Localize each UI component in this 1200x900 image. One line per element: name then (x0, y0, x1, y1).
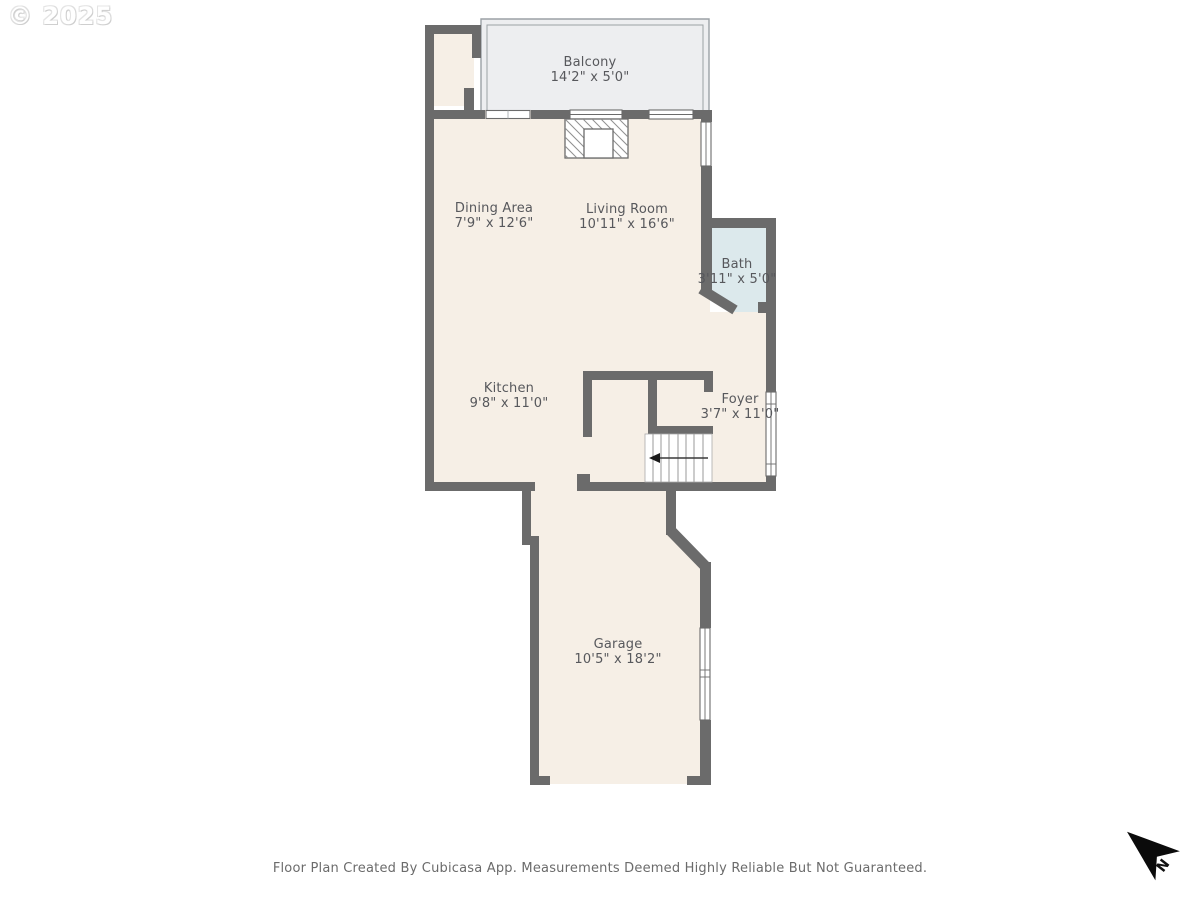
room-name: Living Room (579, 202, 675, 217)
room-name: Kitchen (470, 381, 549, 396)
room-dimensions: 3'7" x 11'0" (701, 407, 780, 422)
room-name: Balcony (551, 55, 630, 70)
room-dimensions: 3'11" x 5'0" (698, 272, 777, 287)
floor-plan-drawing: N (0, 0, 1200, 900)
room-dimensions: 10'11" x 16'6" (579, 217, 675, 232)
room-dimensions: 7'9" x 12'6" (455, 216, 534, 231)
room-label-living-room: Living Room 10'11" x 16'6" (579, 202, 675, 232)
room-label-garage: Garage 10'5" x 18'2" (574, 637, 661, 667)
room-name: Dining Area (455, 201, 534, 216)
room-dimensions: 14'2" x 5'0" (551, 70, 630, 85)
room-label-bath: Bath 3'11" x 5'0" (698, 257, 777, 287)
room-dimensions: 10'5" x 18'2" (574, 652, 661, 667)
disclaimer-text: Floor Plan Created By Cubicasa App. Meas… (0, 861, 1200, 876)
room-label-balcony: Balcony 14'2" x 5'0" (551, 55, 630, 85)
garage-floor (531, 480, 708, 784)
room-label-kitchen: Kitchen 9'8" x 11'0" (470, 381, 549, 411)
floor-plan-page: © 2025 (0, 0, 1200, 900)
room-dimensions: 9'8" x 11'0" (470, 396, 549, 411)
room-name: Garage (574, 637, 661, 652)
room-name: Bath (698, 257, 777, 272)
room-label-dining-area: Dining Area 7'9" x 12'6" (455, 201, 534, 231)
room-name: Foyer (701, 392, 780, 407)
room-label-foyer: Foyer 3'7" x 11'0" (701, 392, 780, 422)
staircase (645, 434, 712, 482)
